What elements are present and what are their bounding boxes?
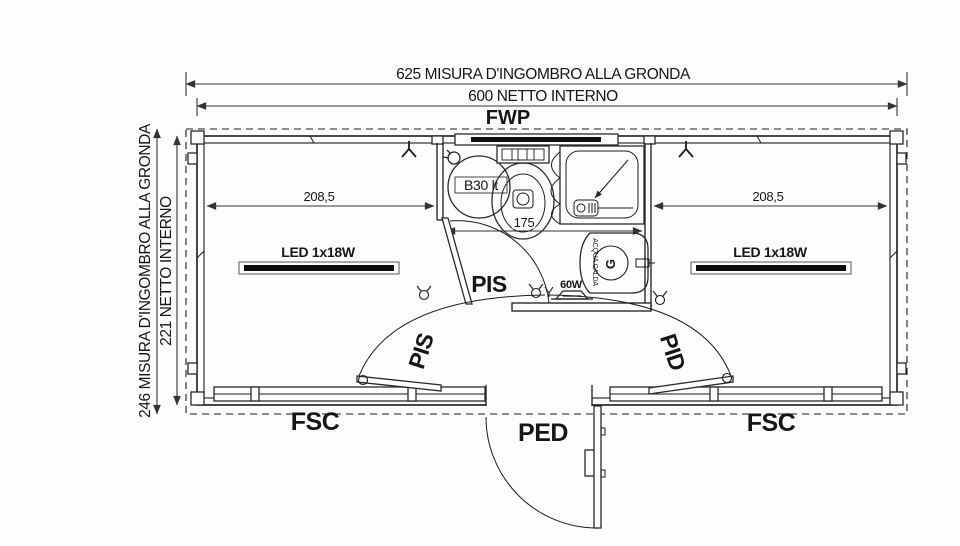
label-ped: PED <box>518 419 568 447</box>
dim-bathroom: 175 <box>514 215 535 230</box>
label-wall-lamp: 60W <box>560 279 583 291</box>
interior-partitions <box>437 143 651 311</box>
bottom-window-left-fsc <box>214 387 485 401</box>
dim-top-outer: 625 MISURA D'INGOMBRO ALLA GRONDA <box>396 66 691 83</box>
dim-right-room: 208,5 <box>752 189 783 204</box>
shower <box>551 146 644 224</box>
dim-left-room: 208,5 <box>303 189 334 204</box>
socket-icons <box>417 284 667 305</box>
label-basin-mark: G <box>603 259 618 269</box>
led-fixture-left <box>239 262 399 274</box>
dimension-lines <box>157 72 907 414</box>
label-bathroom-door: PIS <box>471 271 507 297</box>
entry-opening <box>486 383 592 407</box>
floor-plan-drawing: 625 MISURA D'INGOMBRO ALLA GRONDA 600 NE… <box>0 0 960 546</box>
label-led-right: LED 1x18W <box>733 244 808 260</box>
led-fixture-right <box>691 262 851 274</box>
label-fsc-right: FSC <box>747 409 796 437</box>
label-fwp: FWP <box>486 107 530 129</box>
label-right-door: PID <box>655 330 691 373</box>
label-led-left: LED 1x18W <box>281 244 356 260</box>
floor-plan-canvas: 625 MISURA D'INGOMBRO ALLA GRONDA 600 NE… <box>0 0 960 546</box>
dim-side-outer: 246 MISURA D'INGOMBRO ALLA GRONDA <box>137 123 154 418</box>
dim-top-inner: 600 NETTO INTERNO <box>468 88 618 105</box>
label-hot-water: ACQUA CALDA <box>591 238 598 286</box>
dim-side-inner: 221 NETTO INTERNO <box>158 196 175 346</box>
label-boiler: B30 lt <box>464 177 498 193</box>
label-fsc-left: FSC <box>291 408 340 436</box>
label-left-door: PIS <box>403 330 439 372</box>
left-room-door <box>357 295 545 391</box>
top-window-fwp <box>455 134 618 145</box>
right-room-door <box>548 295 733 394</box>
